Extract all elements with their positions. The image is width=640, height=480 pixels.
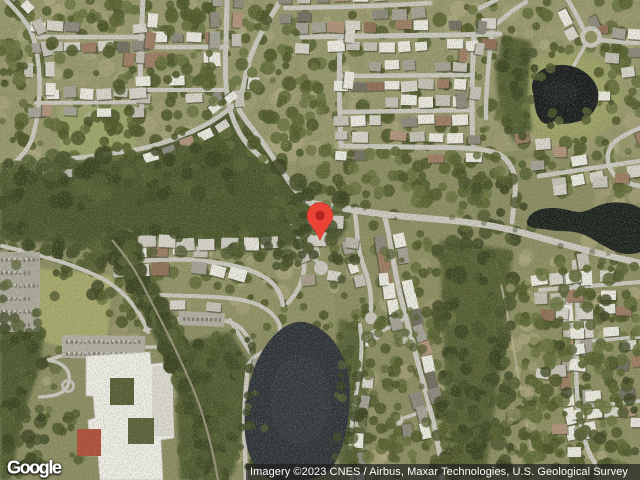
svg-text:Google: Google <box>7 458 62 478</box>
